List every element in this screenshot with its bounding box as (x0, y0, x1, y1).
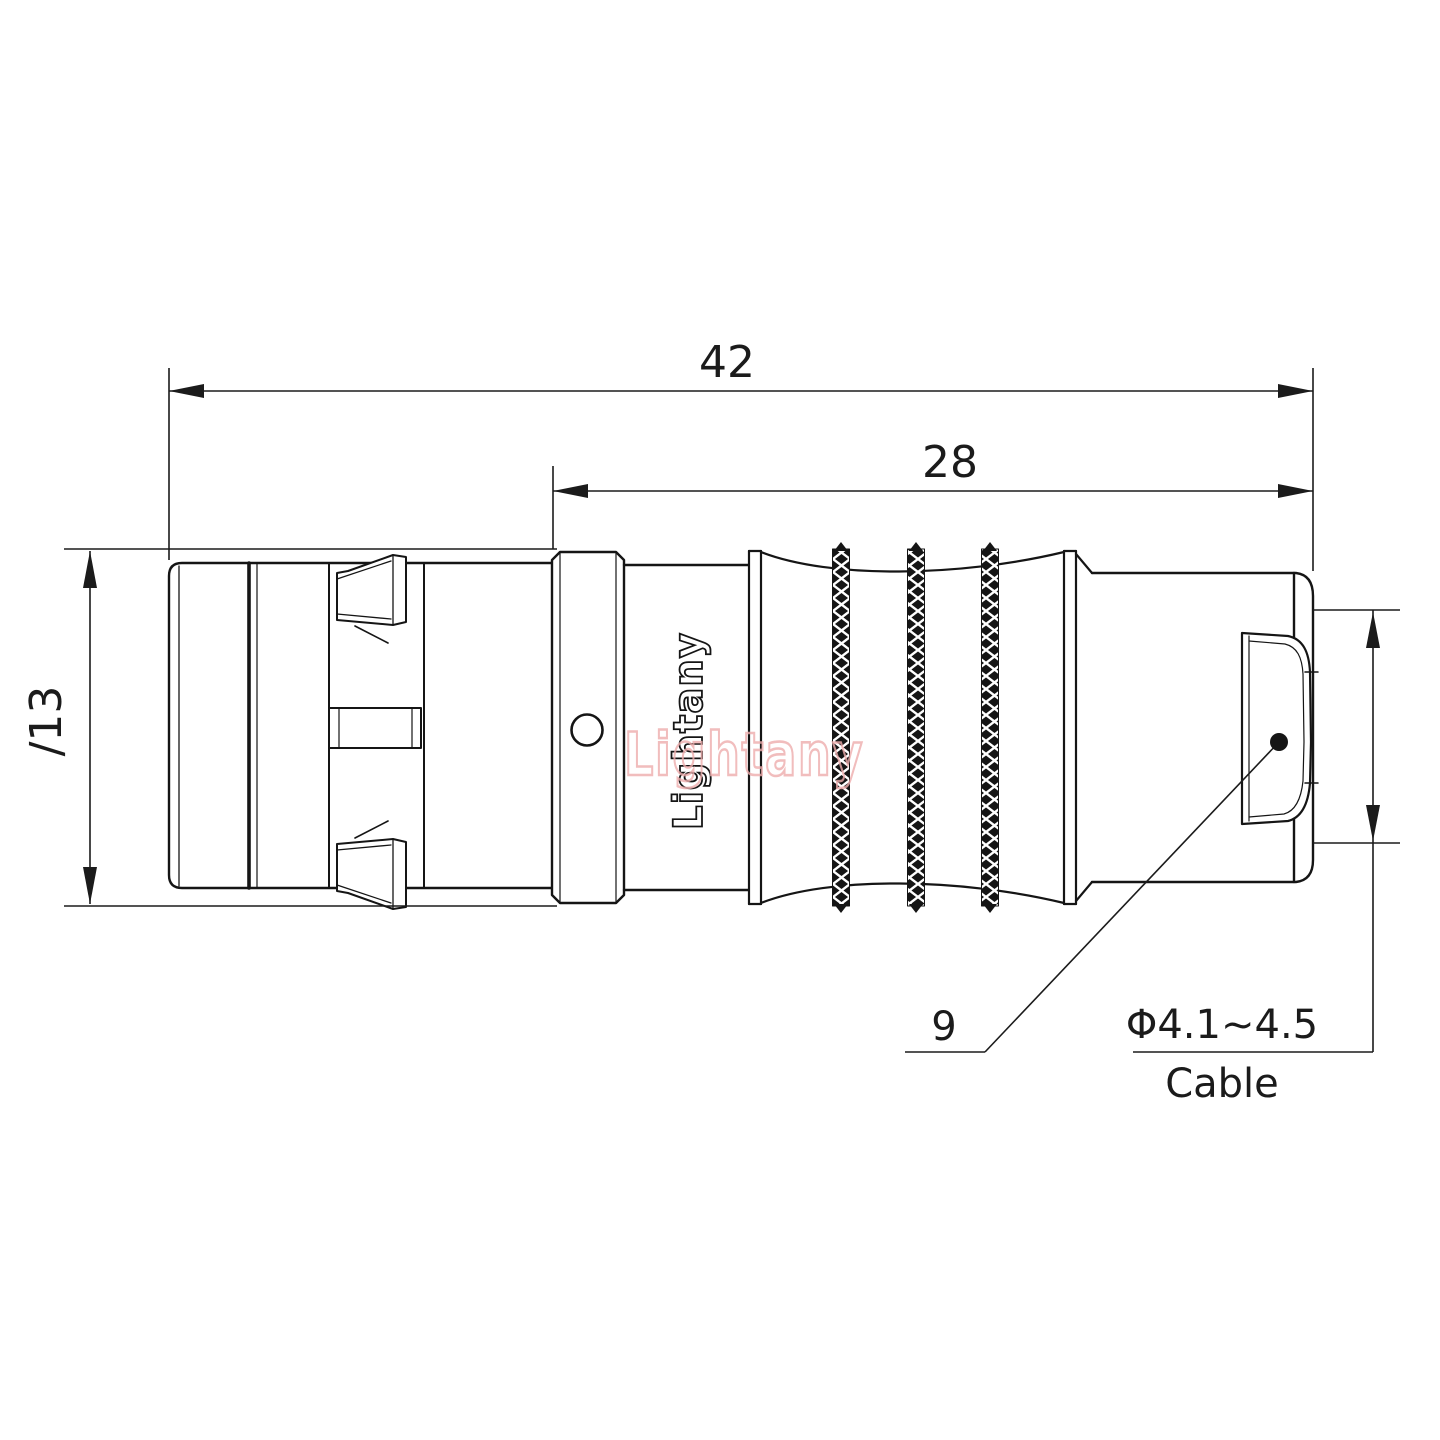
dim-body-length-value: 28 (922, 437, 978, 488)
connector-side-view-drawing: Lightany Lightany 42 28 ∕13 (0, 0, 1440, 1440)
leader-target-dot (1270, 733, 1288, 751)
grip-rear-taper (1076, 554, 1092, 901)
watermark-text: Lightany (624, 720, 864, 790)
dim-nut-value: 9 (931, 1004, 956, 1050)
latch-window (329, 708, 421, 748)
collar-hole (572, 715, 603, 746)
technical-drawing-page: Lightany Lightany 42 28 ∕13 (0, 0, 1440, 1440)
dim-overall-length (169, 368, 1313, 571)
knurl-ring-3 (982, 542, 999, 913)
knurl-ring-2 (908, 542, 925, 913)
dim-cable-entry-value: Φ4.1~4.5 (1126, 1002, 1318, 1048)
dim-diameter-value: ∕13 (21, 686, 72, 757)
cable-bushing (1242, 633, 1318, 824)
dim-overall-length-value: 42 (699, 337, 755, 388)
dim-cable-entry-label: Cable (1165, 1061, 1279, 1107)
